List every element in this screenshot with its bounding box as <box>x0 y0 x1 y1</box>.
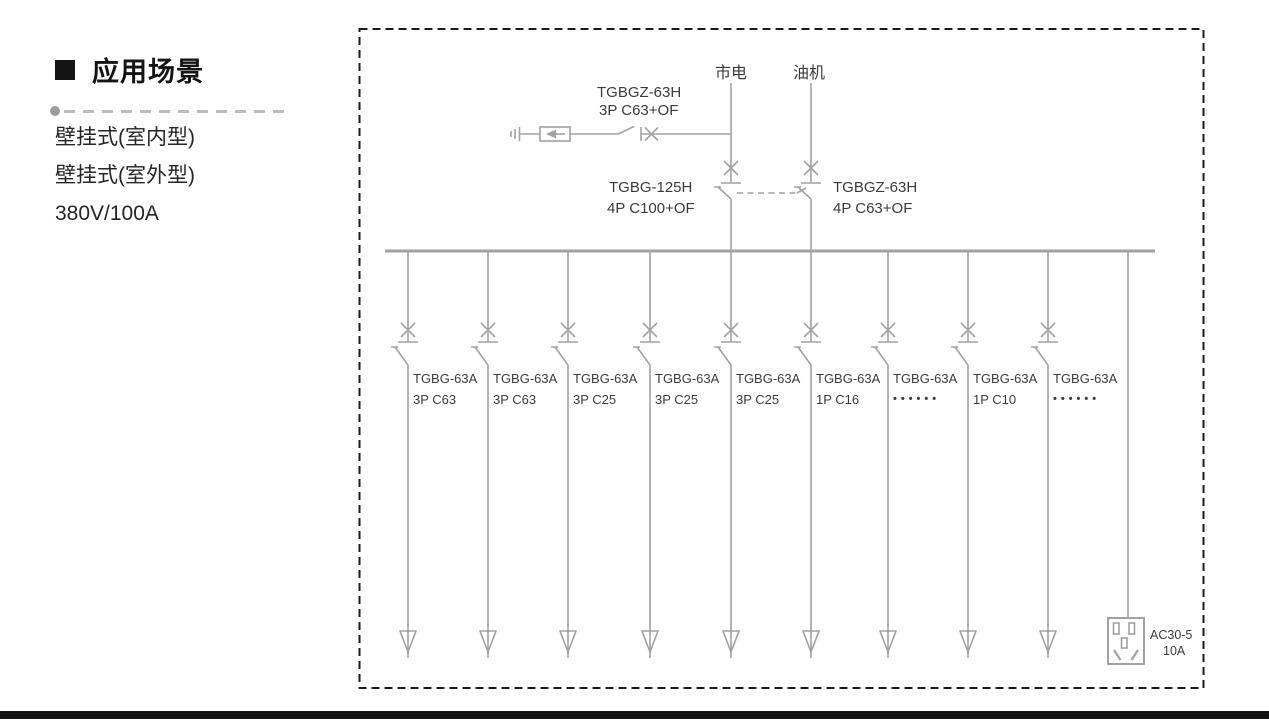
page: 应用场景 壁挂式(室内型) 壁挂式(室外型) 380V/100A <box>0 0 1269 721</box>
branch-circuit-1 <box>391 251 418 658</box>
mains-label: 市电 <box>715 64 747 82</box>
branch-1-model: TGBG-63A <box>413 371 478 386</box>
branch-circuit-9 <box>1031 251 1058 658</box>
branch-9-model: TGBG-63A <box>1053 371 1118 386</box>
branch-2-model: TGBG-63A <box>493 371 558 386</box>
ground-icon <box>511 127 520 141</box>
branch-8-spec: 1P C10 <box>973 392 1016 407</box>
socket-icon <box>1108 618 1144 664</box>
spd-branch <box>511 127 731 142</box>
branch-5-model: TGBG-63A <box>736 371 801 386</box>
branch-4-spec: 3P C25 <box>655 392 698 407</box>
socket-rating: 10A <box>1163 644 1186 658</box>
generator-feed-line <box>794 83 821 251</box>
spd-breaker-model: TGBGZ-63H <box>597 84 681 101</box>
branch-7-spec: •••••• <box>893 393 940 405</box>
branch-circuit-7 <box>871 251 898 658</box>
spd-breaker-spec: 3P C63+OF <box>599 102 678 119</box>
socket-model: AC30-5 <box>1150 628 1192 642</box>
branch-6-spec: 1P C16 <box>816 392 859 407</box>
mains-feed-line <box>714 83 741 251</box>
branch-6-model: TGBG-63A <box>816 371 881 386</box>
generator-label: 油机 <box>793 64 825 82</box>
main-breaker-left-model: TGBG-125H <box>609 179 692 196</box>
branch-3-model: TGBG-63A <box>573 371 638 386</box>
branch-circuit-5 <box>714 251 741 658</box>
single-line-diagram: 市电 油机 TGBGZ-63H 3P C63+OF TGBG-125H 4P C… <box>0 0 1269 721</box>
branch-circuit-2 <box>471 251 498 658</box>
branch-5-spec: 3P C25 <box>736 392 779 407</box>
breaker-blade-icon <box>714 187 731 199</box>
breaker-blade-icon <box>618 127 634 135</box>
breaker-blade-icon <box>794 187 811 199</box>
main-breaker-right-model: TGBGZ-63H <box>833 179 917 196</box>
branch-circuit-6 <box>794 251 821 658</box>
branch-8-model: TGBG-63A <box>973 371 1038 386</box>
diagram-dashed-border <box>360 29 1204 688</box>
branch-7-model: TGBG-63A <box>893 371 958 386</box>
branch-circuit-8 <box>951 251 978 658</box>
branch-circuit-4 <box>633 251 660 658</box>
branch-2-spec: 3P C63 <box>493 392 536 407</box>
branch-4-model: TGBG-63A <box>655 371 720 386</box>
socket-branch <box>1108 251 1144 664</box>
branch-1-spec: 3P C63 <box>413 392 456 407</box>
branch-3-spec: 3P C25 <box>573 392 616 407</box>
main-breaker-right-spec: 4P C63+OF <box>833 200 912 217</box>
branch-9-spec: •••••• <box>1053 393 1100 405</box>
bottom-rule <box>0 711 1269 719</box>
main-breaker-left-spec: 4P C100+OF <box>607 200 695 217</box>
branch-circuit-3 <box>551 251 578 658</box>
